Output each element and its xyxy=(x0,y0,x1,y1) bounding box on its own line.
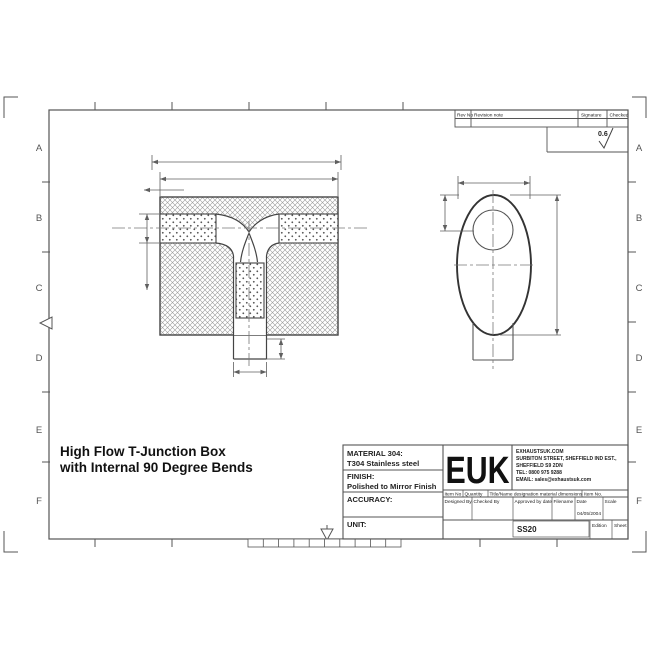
unit-label: UNIT: xyxy=(347,520,366,529)
title-name-label: Title/Name designation material dimensio… xyxy=(490,491,583,497)
zone-letter: B xyxy=(636,213,642,224)
front-view xyxy=(112,155,367,377)
surface-finish-value: 0.6 xyxy=(598,131,608,138)
designed-by-label: Designed By. xyxy=(445,499,473,505)
accuracy-label: ACCURACY: xyxy=(347,495,392,504)
item-no2-label: Item No. xyxy=(584,491,602,497)
material-label: MATERIAL 304: xyxy=(347,449,403,458)
material-value: T304 Stainless steel xyxy=(347,459,419,468)
company-logo: EUK xyxy=(446,450,510,492)
revision-note-label: Revision note xyxy=(474,113,503,119)
scale-strip xyxy=(248,539,401,547)
drawing-title-line1: High Flow T-Junction Box xyxy=(60,444,226,459)
zone-letter: E xyxy=(36,425,42,436)
zone-letter: C xyxy=(36,283,43,294)
left-center-mark xyxy=(40,317,52,329)
zone-letter: A xyxy=(636,143,643,154)
drawing-number: SS20 xyxy=(517,525,537,534)
zone-letter: D xyxy=(36,353,43,364)
checked-by-label: Checked By xyxy=(474,499,500,505)
finish-label: FINISH: xyxy=(347,472,374,481)
zone-letter: A xyxy=(36,143,43,154)
date-value: 04/05/2004 xyxy=(577,511,601,517)
drawing-title: High Flow T-Junction Box with Internal 9… xyxy=(59,444,253,475)
edition-label: Edition xyxy=(592,523,607,529)
finish-value: Polished to Mirror Finish xyxy=(347,482,437,491)
side-view xyxy=(440,176,561,369)
approved-label: Approved by date xyxy=(515,499,553,505)
company-line: EMAIL: sales@exhaustsuk.com xyxy=(516,477,592,483)
drawing-canvas: A B C D E F A B C D E F Rev No Revision … xyxy=(0,0,650,650)
surface-finish-symbol: 0.6 xyxy=(598,128,613,148)
zone-letter: B xyxy=(36,213,42,224)
quantity-label: Quantity xyxy=(465,491,483,497)
filename-label: Filename xyxy=(554,499,574,505)
company-info: EXHAUSTSUK.COM SURBITON STREET, SHEFFIEL… xyxy=(516,449,617,483)
signature-label: Signature xyxy=(581,113,602,119)
company-line: TEL: 0800 975 9288 xyxy=(516,470,562,476)
company-line: EXHAUSTSUK.COM xyxy=(516,449,564,455)
drawing-sheet: A B C D E F A B C D E F Rev No Revision … xyxy=(0,0,650,650)
scale-label: Scale xyxy=(605,499,617,505)
zone-letter: E xyxy=(636,425,642,436)
drawing-title-line2: with Internal 90 Degree Bends xyxy=(59,460,253,475)
rev-no-label: Rev No xyxy=(457,113,473,119)
zone-letter: F xyxy=(636,496,642,507)
sheet-label: Sheet xyxy=(614,523,627,529)
title-block: MATERIAL 304: T304 Stainless steel FINIS… xyxy=(343,445,628,539)
zone-letter: F xyxy=(36,496,42,507)
zone-letter: C xyxy=(636,283,643,294)
date-label: Date xyxy=(577,499,587,505)
company-line: SHEFFIELD S9 2DN xyxy=(516,463,563,469)
checked-label: Checked xyxy=(610,113,629,119)
item-no-label: Item No xyxy=(445,491,462,497)
zone-letter: D xyxy=(636,353,643,364)
revision-table: Rev No Revision note Signature Checked 0… xyxy=(455,110,629,152)
company-line: SURBITON STREET, SHEFFIELD IND EST., xyxy=(516,456,617,462)
